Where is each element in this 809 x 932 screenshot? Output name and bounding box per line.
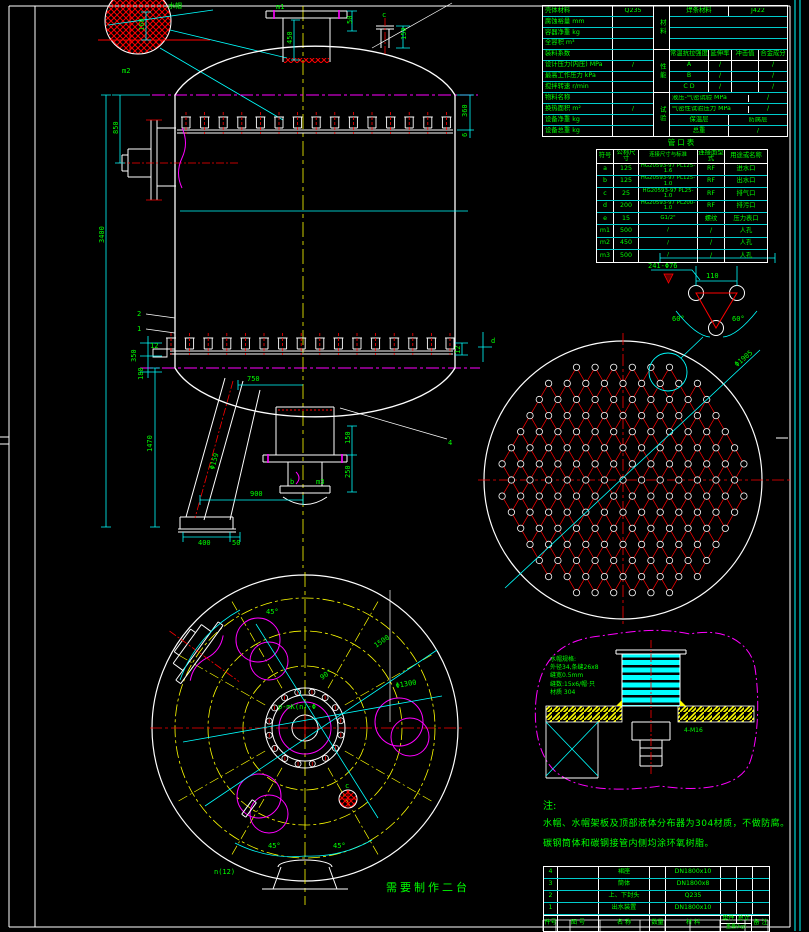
cell: 200 xyxy=(614,201,639,212)
cell: 筒体 xyxy=(599,879,650,890)
dim-400: 400 xyxy=(198,539,211,547)
cell xyxy=(737,903,753,914)
spec-left: 壳体材料Q235腐蚀裕量 mm容器净重 kg全容积 m³装料系数设计压力(内压)… xyxy=(543,6,654,136)
dim-180: 180 xyxy=(137,367,145,380)
cell: / xyxy=(613,106,653,113)
cell: 人孔 xyxy=(725,238,767,249)
parts-list: 4裙座DN1800x103筒体DN1800x82上、下封头Q2351出水装置DN… xyxy=(543,866,770,932)
dim-3400: 3400 xyxy=(98,226,106,243)
detail-right-label: 4-M16 xyxy=(684,727,703,734)
strip-test: 试验 xyxy=(654,93,669,136)
label-d: d xyxy=(491,337,495,345)
cell: 125 xyxy=(614,164,639,175)
strip-material: 材料 xyxy=(654,6,669,50)
cell: HG20593-97 PL25-1.0 xyxy=(639,188,698,199)
parts-row: 1出水装置DN1800x10 xyxy=(544,903,769,915)
spec-right: 焊条材料J422 常温抗拉强度 延伸率 冲击值 合金成分 A// B// C D… xyxy=(670,6,787,136)
cell xyxy=(732,61,759,71)
spec-row: 腐蚀裕量 mm xyxy=(543,17,653,28)
empty-row xyxy=(670,28,787,39)
label-m1: m1 xyxy=(276,3,284,11)
dim-12-right: 12 xyxy=(454,346,462,354)
cell xyxy=(737,867,753,878)
cell xyxy=(558,867,599,878)
nozzle-table-title: 管口表 xyxy=(596,139,768,147)
plan-phi1300: Φ1300 xyxy=(395,678,417,690)
cell: 设计压力(内压) MPa xyxy=(543,61,613,71)
water-cap-detail xyxy=(535,630,757,789)
dim-450: 450 xyxy=(286,31,294,44)
part-1: 1 xyxy=(137,325,141,333)
cell: / xyxy=(639,238,698,249)
plan-center-note: p-mK(n)-Φ xyxy=(278,703,316,711)
cell: 4 xyxy=(544,867,558,878)
cell: 装料系数 xyxy=(543,50,613,60)
dim-250: 250 xyxy=(344,465,352,478)
weld-label: 焊条材料 xyxy=(670,6,729,16)
cell: 物料名称 xyxy=(543,93,613,103)
empty-row xyxy=(670,39,787,50)
cell: 水帽规格: xyxy=(550,656,622,664)
cell xyxy=(753,879,769,890)
spec-row: 换热面积 m²/ xyxy=(543,104,653,115)
plan-1500: 1500 xyxy=(373,634,391,650)
cell: DN1800x10 xyxy=(666,867,721,878)
cell: 压力表口 xyxy=(725,213,767,224)
spec-row: 搅拌转速 r/min xyxy=(543,82,653,93)
nozzle-row: b125HG20593-97 PL125-1.0RF出水口 xyxy=(597,176,767,188)
cell: 人孔 xyxy=(725,225,767,236)
water-cap-rows xyxy=(166,112,455,355)
cell: DN1800x10 xyxy=(666,903,721,914)
spec-row: 全容积 m³ xyxy=(543,39,653,50)
mech-1: B// xyxy=(670,72,787,83)
cell: 搅拌转速 r/min xyxy=(543,82,613,92)
cell xyxy=(732,82,759,92)
dim-12: 12 xyxy=(150,342,158,350)
cell xyxy=(650,891,666,902)
cell: RF xyxy=(698,188,725,199)
cell: 出水口 xyxy=(725,176,767,187)
cell: 25 xyxy=(614,188,639,199)
cell: 连接尺寸与标准 xyxy=(639,150,698,163)
label-m3: m3 xyxy=(316,478,324,486)
cell: / xyxy=(759,72,787,82)
spec-row: 壳体材料Q235 xyxy=(543,6,653,17)
nozzle-row: m2450//人孔 xyxy=(597,238,767,250)
cell xyxy=(721,867,737,878)
note-lines: 水帽、水帽架板及顶部液体分布器为304材质，不做防腐。碳钢筒体和碳钢接管内侧均涂… xyxy=(543,816,805,849)
cell: / xyxy=(613,62,653,69)
cell xyxy=(721,903,737,914)
cell: 500 xyxy=(614,225,639,236)
cell xyxy=(650,903,666,914)
spec-row: 设备总重 kg xyxy=(543,126,653,136)
cell: 螺纹 xyxy=(698,213,725,224)
empty-row xyxy=(670,17,787,28)
dim-350: 350 xyxy=(130,349,138,362)
cell: 上、下封头 xyxy=(599,891,650,902)
cell: 缝宽0.5mm xyxy=(550,672,622,680)
cell: e xyxy=(597,213,614,224)
cell xyxy=(753,903,769,914)
parts-rows: 4裙座DN1800x103筒体DN1800x82上、下封头Q2351出水装置DN… xyxy=(544,867,769,915)
cell: RF xyxy=(698,176,725,187)
cell: 设备净重 kg xyxy=(543,115,613,125)
make-quantity-note: 需要制作二台 xyxy=(386,879,470,895)
parts-row: 3筒体DN1800x8 xyxy=(544,879,769,891)
cell: 2 xyxy=(544,891,558,902)
plan-45-bl: 45° xyxy=(268,842,281,850)
callout-label: 水帽 xyxy=(168,1,182,10)
cell xyxy=(558,879,599,890)
dim-150-flange: 150 xyxy=(344,431,352,444)
parts-header: 件号 图 号 名 称 数量 材 料 单件总计 重量(kg) 备 注 xyxy=(544,915,769,931)
dim-900: 900 xyxy=(250,490,263,498)
dim-pitch: 110 xyxy=(706,272,719,280)
cell: 出水装置 xyxy=(599,903,650,914)
cell: 符号 xyxy=(597,150,614,163)
cell: 125 xyxy=(614,176,639,187)
mech-header: 常温抗拉强度 延伸率 冲击值 合金成分 xyxy=(670,50,787,61)
nozzle-row: c25HG20593-97 PL25-1.0RF排气口 xyxy=(597,188,767,200)
cell xyxy=(737,879,753,890)
cell: 换热面积 m² xyxy=(543,104,613,114)
cell: / xyxy=(759,61,787,71)
cell: 3 xyxy=(544,879,558,890)
strip-performance: 性能 xyxy=(654,50,669,94)
cell: RF xyxy=(698,201,725,212)
dim-50: 50 xyxy=(346,16,354,24)
cell xyxy=(737,891,753,902)
plan-n12: n(12) xyxy=(214,868,235,876)
cell xyxy=(650,867,666,878)
parts-row: 4裙座DN1800x10 xyxy=(544,867,769,879)
cell: 水帽、水帽架板及顶部液体分布器为304材质，不做防腐。 xyxy=(543,816,805,829)
plan-90: 90° xyxy=(319,668,334,682)
cell: 进水口 xyxy=(725,164,767,175)
cell: 设备总重 kg xyxy=(543,126,613,136)
cell: / xyxy=(709,72,732,82)
frame-accent-line xyxy=(795,0,800,931)
nozzle-row: m3500//人孔 xyxy=(597,250,767,261)
nozzle-row: d200HG20593-97 PL200-1.0RF排污口 xyxy=(597,201,767,213)
tube-holes-label: 241-Φ76 xyxy=(648,262,678,270)
spec-row: 设计压力(内压) MPa/ xyxy=(543,61,653,72)
nozzle-row: a125HG20593-97 PL125-1.6RF进水口 xyxy=(597,164,767,176)
plan-45-top: 45° xyxy=(266,608,279,616)
cell: / xyxy=(639,225,698,236)
cell: m2 xyxy=(597,238,614,249)
cell: 碳钢筒体和碳钢接管内侧均涂环氧树脂。 xyxy=(543,836,805,849)
mech-2: C D// xyxy=(670,82,787,93)
cell: / xyxy=(698,238,725,249)
cell: 450 xyxy=(614,238,639,249)
notes-title: 注: xyxy=(543,797,805,812)
nozzle-table: 管口表 符号公称尺寸连接尺寸与标准连接面型式用途或名称 a125HG20593-… xyxy=(596,139,768,263)
cell: d xyxy=(597,201,614,212)
cell: DN1800x8 xyxy=(666,879,721,890)
nozzle-body: a125HG20593-97 PL125-1.6RF进水口b125HG20593… xyxy=(597,164,767,262)
spec-row: 设备净重 kg xyxy=(543,115,653,126)
dim-1470: 1470 xyxy=(146,435,154,452)
cell xyxy=(558,903,599,914)
cell: 全容积 m³ xyxy=(543,39,613,49)
cell: B xyxy=(670,72,709,82)
cell: 壳体材料 xyxy=(543,6,613,16)
nozzle-row: m1500//人孔 xyxy=(597,225,767,237)
cell xyxy=(753,891,769,902)
cell xyxy=(721,879,737,890)
cell: 裙座 xyxy=(599,867,650,878)
cell: 用途或名称 xyxy=(725,150,767,163)
cell: HG20593-97 PL125-1.0 xyxy=(639,176,698,187)
part-2: 2 xyxy=(137,310,141,318)
cell: / xyxy=(639,250,698,261)
cell: 公称尺寸 xyxy=(614,150,639,163)
cell: A xyxy=(670,61,709,71)
dim-160: 160 xyxy=(138,18,146,31)
nozzle-head: 符号公称尺寸连接尺寸与标准连接面型式用途或名称 xyxy=(597,150,767,164)
plan-c: c xyxy=(345,782,349,790)
cell: 材质 304 xyxy=(550,689,622,697)
dim-60-right: 60° xyxy=(732,315,745,323)
part-4: 4 xyxy=(448,439,452,447)
spec-row: 装料系数 xyxy=(543,50,653,61)
cell xyxy=(558,891,599,902)
cell: G1/2" xyxy=(639,213,698,224)
cell: / xyxy=(709,61,732,71)
cell: Q235 xyxy=(666,891,721,902)
plan-45-br: 45° xyxy=(333,842,346,850)
cell: a xyxy=(597,164,614,175)
dim-6: 6 xyxy=(461,133,469,137)
parts-row: 2上、下封头Q235 xyxy=(544,891,769,903)
cell: 500 xyxy=(614,250,639,261)
mech-0: A// xyxy=(670,61,787,72)
dim-360: 360 xyxy=(461,104,469,117)
dim-150: 150 xyxy=(400,27,408,40)
nozzle-row: e15G1/2"螺纹压力表口 xyxy=(597,213,767,225)
label-b: b xyxy=(290,478,294,486)
cell: Q235 xyxy=(613,8,653,15)
dim-60-left: 60° xyxy=(672,315,685,323)
cad-sheet: { "labels": { "callout_water_cap": "水帽",… xyxy=(0,0,809,931)
cell: / xyxy=(709,82,732,92)
cell xyxy=(753,867,769,878)
dim-750: 750 xyxy=(247,375,260,383)
cell xyxy=(650,879,666,890)
dim-850: 850 xyxy=(112,121,120,134)
cell: 排气口 xyxy=(725,188,767,199)
spec-row: 容器净重 kg xyxy=(543,28,653,39)
cell: HG20593-97 PL200-1.0 xyxy=(639,201,698,212)
cell: / xyxy=(698,250,725,261)
cell: 容器净重 kg xyxy=(543,28,613,38)
cell: m3 xyxy=(597,250,614,261)
dim-50-base: 50 xyxy=(232,539,240,547)
cell: 连接面型式 xyxy=(698,150,725,163)
spec-table: 壳体材料Q235腐蚀裕量 mm容器净重 kg全容积 m³装料系数设计压力(内压)… xyxy=(542,5,788,137)
cell: 腐蚀裕量 mm xyxy=(543,17,613,27)
cell: C D xyxy=(670,82,709,92)
spec-row: 物料名称 xyxy=(543,93,653,104)
plan-view xyxy=(148,572,462,905)
cell: RF xyxy=(698,164,725,175)
cell xyxy=(721,891,737,902)
cell xyxy=(732,72,759,82)
label-c: c xyxy=(382,11,386,19)
tube-sheet-view xyxy=(478,332,790,627)
spec-strips: 材料 性能 试验 xyxy=(654,6,670,136)
cell: HG20593-97 PL125-1.6 xyxy=(639,164,698,175)
detail-lines: 水帽规格:外径34,条缝26x8缝宽0.5mm缝数:15x6/帽·只材质 304 xyxy=(550,656,622,697)
weight-header: 单件总计 重量(kg) xyxy=(721,916,752,931)
spec-row: 最高工作压力 kPa xyxy=(543,72,653,83)
cell: / xyxy=(759,82,787,92)
cell: 缝数:15x6/帽·只 xyxy=(550,681,622,689)
cell: c xyxy=(597,188,614,199)
notes: 注: 水帽、水帽架板及顶部液体分布器为304材质，不做防腐。碳钢筒体和碳钢接管内… xyxy=(543,797,805,856)
weld-value: J422 xyxy=(729,8,787,15)
water-cap-callout: 水帽 xyxy=(98,0,287,120)
cell: / xyxy=(698,225,725,236)
cell: m1 xyxy=(597,225,614,236)
cell: 15 xyxy=(614,213,639,224)
label-m2: m2 xyxy=(122,67,130,75)
cell: 最高工作压力 kPa xyxy=(543,72,613,82)
cell: 1 xyxy=(544,903,558,914)
detail-bubble xyxy=(649,353,687,391)
cell: 排污口 xyxy=(725,201,767,212)
cell: 人孔 xyxy=(725,250,767,261)
cell: b xyxy=(597,176,614,187)
